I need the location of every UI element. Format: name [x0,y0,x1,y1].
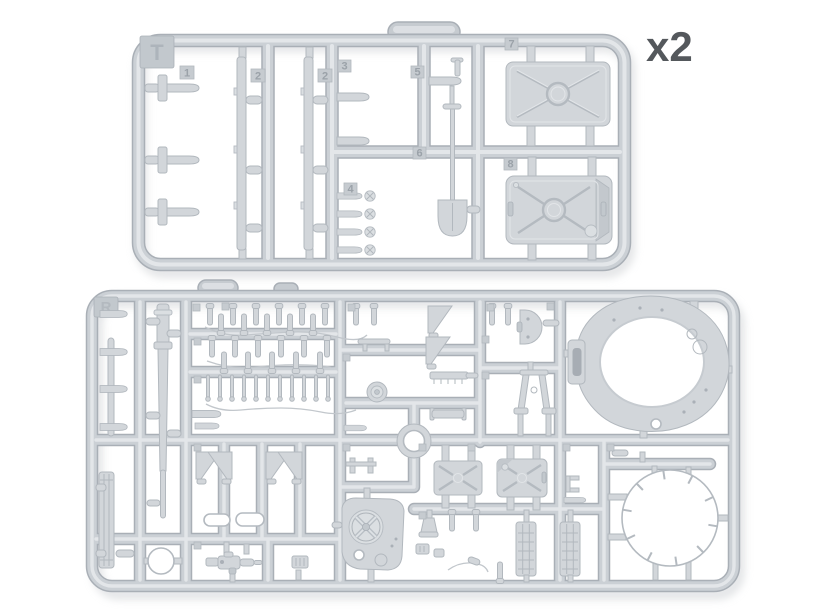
radiator-grids [516,510,580,582]
model-kit-sprues-photo: T [0,0,820,615]
turret-ring-part [564,296,732,438]
quantity-label: x2 [646,23,693,70]
clamp-parts [564,476,586,503]
top-sprue-number-tabs: 1 2 2 3 4 5 6 7 8 [180,38,518,196]
part-number-5: 5 [414,67,420,79]
bottom-sprue: R [92,280,739,594]
round-hatch-part [144,548,182,574]
part-8-fuel-tank [506,157,612,260]
top-sprue: T [139,22,630,272]
machine-gun-part [206,542,308,582]
part-number-3: 3 [341,61,347,73]
part-number-7: 7 [508,39,514,51]
tow-rod-part [100,311,127,436]
sprues-illustration: T [0,0,820,615]
part-number-1: 1 [184,68,190,80]
part-3-bullets [337,93,369,145]
top-sprue-letter-tab: T [140,36,174,68]
fuel-tank-face-right [497,445,547,510]
part-number-6: 6 [416,148,422,160]
top-sprue-letter: T [150,40,164,65]
part-number-2b: 2 [322,71,328,83]
misc-small-parts [416,510,504,584]
part-7-fuel-tank [506,46,610,146]
grille-part [96,472,134,568]
part-5 [429,58,463,85]
bracket-triangles [196,452,302,526]
part-number-4: 4 [347,184,354,196]
vent-plate-part [292,556,308,580]
ring-part [397,424,431,458]
part-number-2a: 2 [255,71,261,83]
part-4-cylinders [337,191,375,255]
part-2-strips [234,47,328,259]
fuel-tank-face-left [434,445,482,508]
part-1-brackets [145,75,199,225]
part-number-8: 8 [507,159,513,171]
gun-barrel-part [146,304,181,518]
